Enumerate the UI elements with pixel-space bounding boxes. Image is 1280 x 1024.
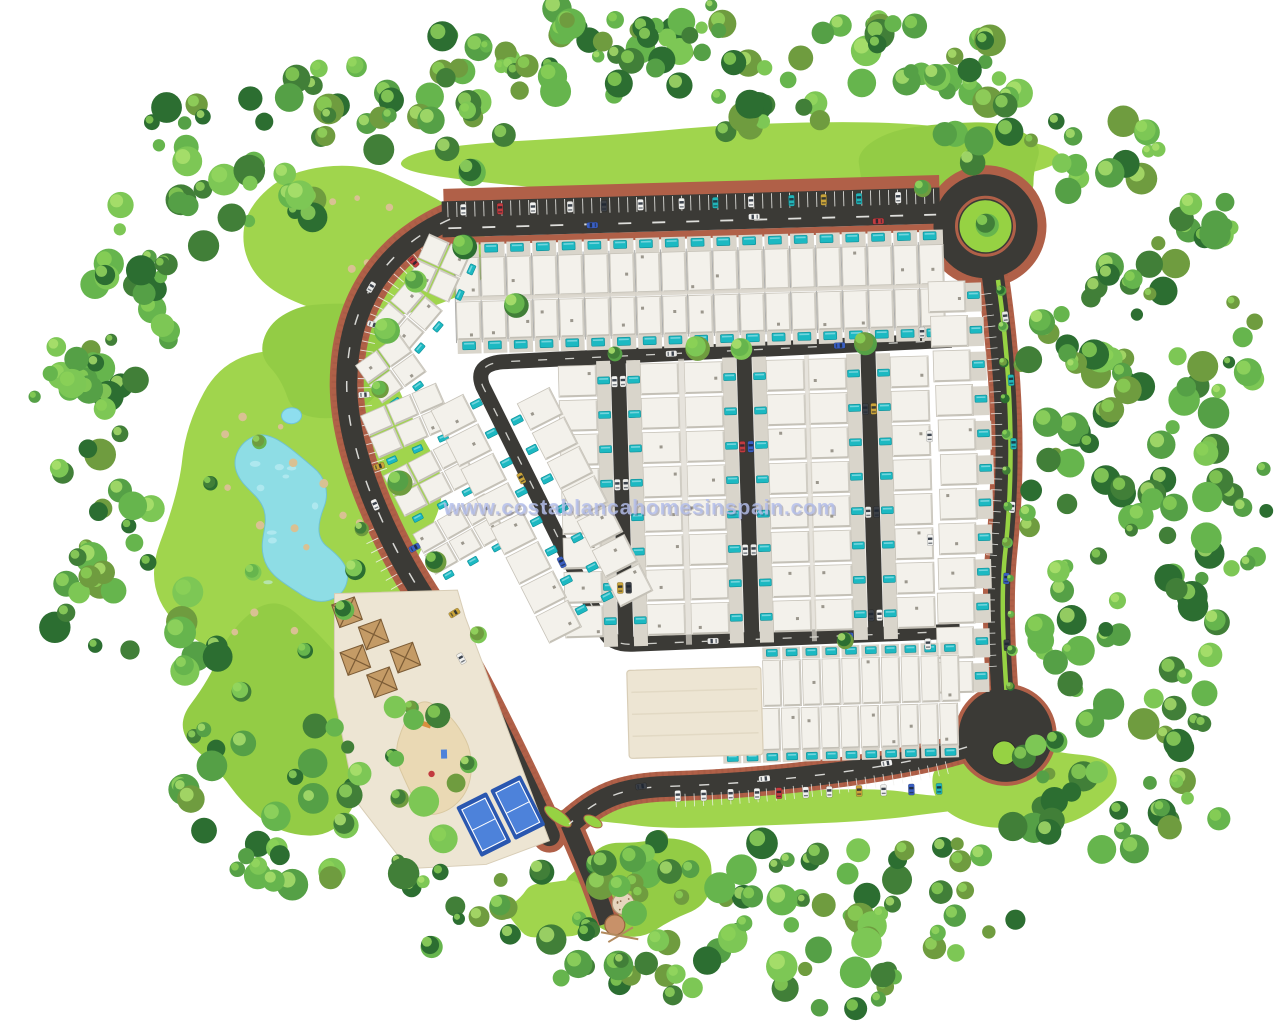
water-tower xyxy=(605,915,626,936)
car xyxy=(530,202,536,213)
car xyxy=(707,638,718,644)
car xyxy=(856,193,862,204)
play-equipment xyxy=(441,749,447,758)
car xyxy=(358,391,370,398)
parking-stripe xyxy=(694,793,695,806)
car xyxy=(748,441,754,452)
car xyxy=(728,789,734,800)
car xyxy=(868,610,874,621)
car xyxy=(871,403,877,414)
car xyxy=(803,787,809,798)
car xyxy=(908,784,914,795)
car xyxy=(873,218,884,224)
car xyxy=(614,479,620,490)
inner-street xyxy=(868,350,876,640)
car xyxy=(712,197,718,208)
car xyxy=(1002,311,1009,323)
parking-stripe xyxy=(992,446,1003,447)
car xyxy=(895,192,901,203)
car xyxy=(623,479,629,490)
car xyxy=(620,376,626,387)
car xyxy=(617,582,623,593)
car xyxy=(754,788,760,799)
car xyxy=(919,327,925,338)
car xyxy=(821,194,827,205)
pond xyxy=(281,407,301,424)
car xyxy=(701,790,707,801)
car xyxy=(675,790,681,801)
car xyxy=(862,403,868,414)
car xyxy=(678,198,684,209)
car xyxy=(759,775,771,782)
tree xyxy=(458,159,485,186)
parking-stripe xyxy=(990,402,1001,403)
car xyxy=(876,609,882,620)
car xyxy=(927,534,933,545)
masterplan-page: www.costablancahomesinspain.com www.cost… xyxy=(0,0,1280,1024)
car xyxy=(497,203,503,214)
car xyxy=(880,785,886,796)
top-terrace-block xyxy=(454,229,948,354)
car xyxy=(776,788,782,799)
car xyxy=(1008,374,1015,386)
car xyxy=(635,783,647,791)
car xyxy=(587,222,598,228)
watermark: www.costablancahomesinspain.com www.cost… xyxy=(443,496,838,522)
tree xyxy=(1046,731,1068,753)
car xyxy=(788,195,794,206)
tree xyxy=(529,860,554,885)
car xyxy=(567,201,573,212)
car xyxy=(637,199,643,210)
car xyxy=(625,582,631,593)
watermark-text: www.costablancahomesinspain.com xyxy=(443,496,837,520)
car xyxy=(936,783,942,794)
car xyxy=(739,441,745,452)
car xyxy=(750,544,756,555)
parking-stripe xyxy=(984,588,995,589)
car xyxy=(856,785,862,796)
tree xyxy=(924,64,951,91)
car xyxy=(742,544,748,555)
car xyxy=(834,342,845,349)
tree xyxy=(489,895,514,920)
car xyxy=(460,204,466,215)
car xyxy=(611,376,617,387)
parking-stripe xyxy=(685,794,686,807)
car xyxy=(666,350,677,357)
car xyxy=(925,638,931,649)
car xyxy=(748,214,759,220)
tree xyxy=(94,265,119,290)
tree xyxy=(1134,119,1160,145)
tree xyxy=(1029,309,1055,335)
car xyxy=(601,200,607,211)
tree xyxy=(1204,609,1230,635)
masterplan-render: www.costablancahomesinspain.com www.cost… xyxy=(0,0,1280,1024)
tree xyxy=(346,57,367,78)
car xyxy=(1011,438,1017,449)
car xyxy=(826,786,832,797)
tree xyxy=(232,682,252,702)
car xyxy=(926,431,932,442)
car xyxy=(873,506,879,517)
tree xyxy=(421,936,443,958)
car xyxy=(865,507,871,518)
car xyxy=(748,196,754,207)
